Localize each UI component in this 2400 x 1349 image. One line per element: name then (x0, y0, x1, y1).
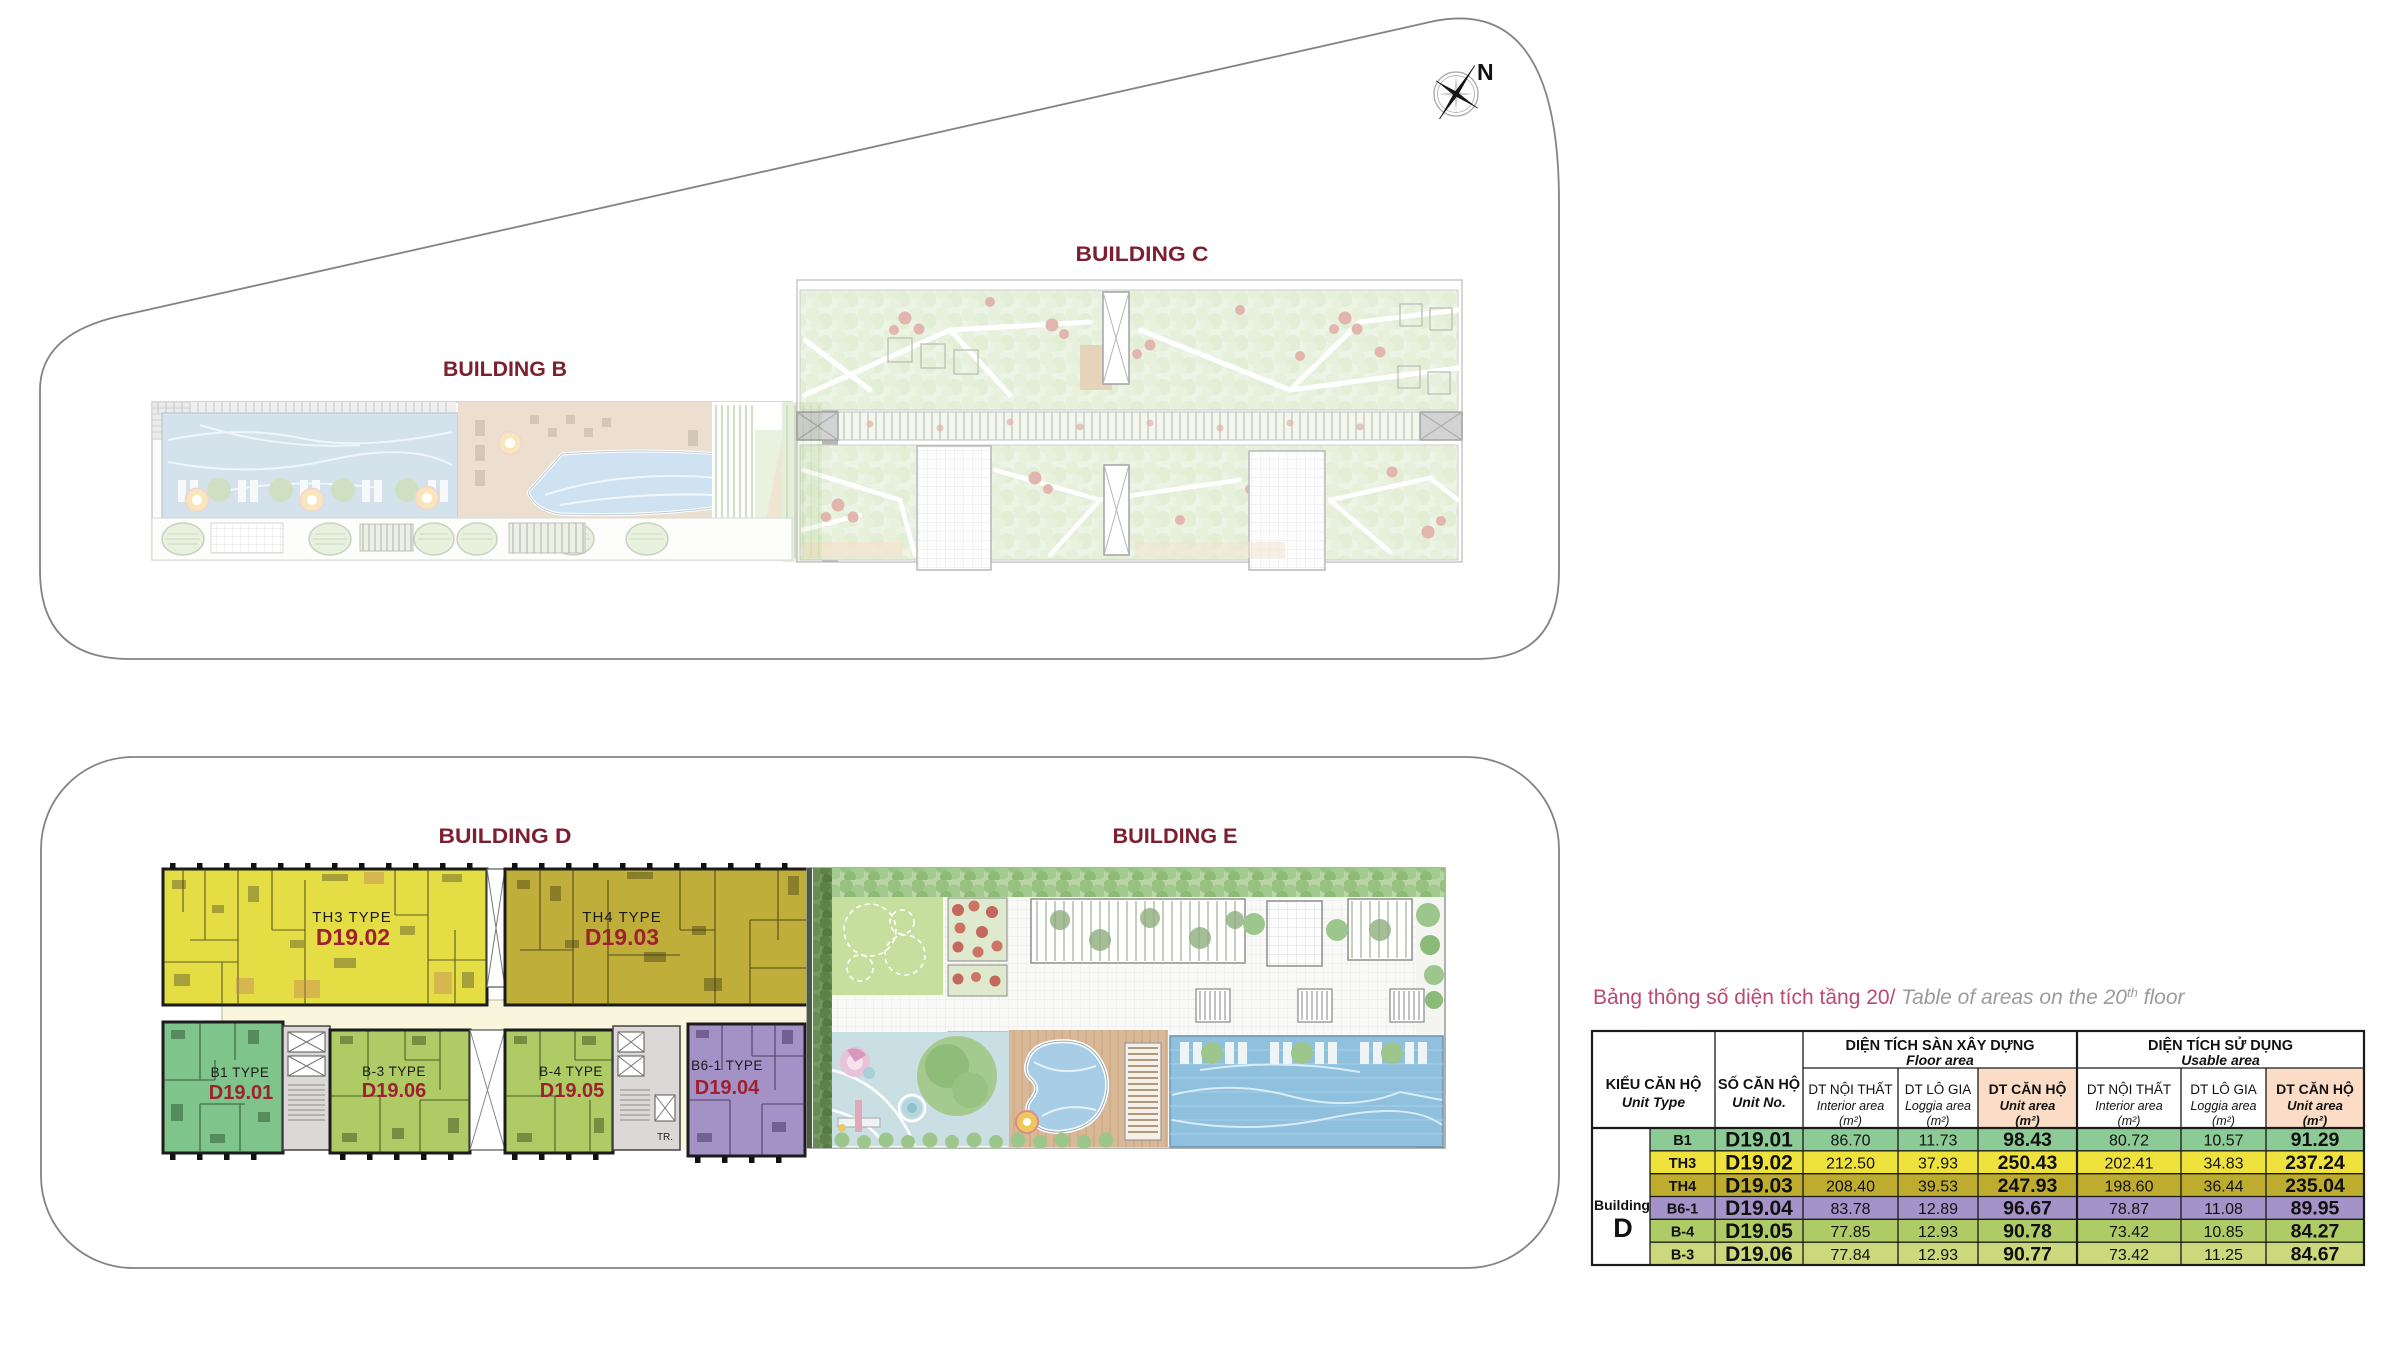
svg-text:11.73: 11.73 (1919, 1133, 1958, 1150)
svg-text:(m²): (m²) (2015, 1113, 2040, 1128)
svg-text:B1: B1 (1673, 1133, 1692, 1149)
svg-text:247.93: 247.93 (1998, 1175, 2058, 1197)
svg-text:B6-1 TYPE: B6-1 TYPE (691, 1058, 763, 1073)
svg-text:98.43: 98.43 (2003, 1129, 2052, 1151)
svg-text:12.93: 12.93 (1918, 1247, 1958, 1264)
svg-text:TR.: TR. (657, 1132, 673, 1143)
svg-text:77.85: 77.85 (1830, 1224, 1870, 1241)
svg-text:12.89: 12.89 (1918, 1201, 1958, 1218)
svg-text:Loggia area: Loggia area (1905, 1099, 1971, 1113)
svg-text:(m²): (m²) (2118, 1114, 2141, 1128)
svg-text:39.53: 39.53 (1918, 1179, 1958, 1196)
svg-text:D19.02: D19.02 (316, 924, 390, 950)
svg-text:90.77: 90.77 (2003, 1244, 2052, 1266)
svg-text:Unit area: Unit area (2000, 1098, 2056, 1113)
svg-text:D19.03: D19.03 (585, 924, 659, 950)
svg-text:KIỂU CĂN HỘ: KIỂU CĂN HỘ (1606, 1075, 1702, 1093)
svg-text:SỐ CĂN HỘ: SỐ CĂN HỘ (1718, 1075, 1800, 1093)
svg-text:37.93: 37.93 (1918, 1156, 1958, 1173)
svg-text:B-4 TYPE: B-4 TYPE (539, 1064, 603, 1079)
svg-text:N: N (1477, 59, 1494, 85)
svg-text:198.60: 198.60 (2105, 1179, 2154, 1196)
svg-text:73.42: 73.42 (2109, 1247, 2149, 1264)
svg-text:BUILDING C: BUILDING C (1076, 242, 1209, 266)
svg-text:80.72: 80.72 (2109, 1133, 2149, 1150)
svg-text:11.08: 11.08 (2204, 1201, 2243, 1218)
svg-text:Building: Building (1594, 1197, 1650, 1213)
svg-text:(m²): (m²) (1839, 1114, 1862, 1128)
svg-text:(m²): (m²) (2303, 1113, 2328, 1128)
svg-text:Unit area: Unit area (2287, 1098, 2343, 1113)
svg-text:250.43: 250.43 (1998, 1152, 2058, 1174)
svg-text:235.04: 235.04 (2285, 1175, 2345, 1197)
svg-text:Interior area: Interior area (2095, 1099, 2162, 1113)
svg-text:D19.03: D19.03 (1725, 1175, 1793, 1198)
svg-text:Unit No.: Unit No. (1732, 1094, 1786, 1110)
svg-text:96.67: 96.67 (2003, 1198, 2052, 1220)
svg-text:DT LÔ GIA: DT LÔ GIA (1905, 1082, 1972, 1097)
svg-text:B-4: B-4 (1671, 1225, 1694, 1241)
svg-text:84.67: 84.67 (2291, 1244, 2340, 1266)
svg-text:D19.01: D19.01 (209, 1082, 274, 1104)
svg-text:B-3: B-3 (1671, 1248, 1694, 1264)
svg-text:D19.05: D19.05 (1725, 1220, 1793, 1243)
svg-text:B-3 TYPE: B-3 TYPE (362, 1064, 426, 1079)
svg-text:D19.06: D19.06 (362, 1080, 427, 1102)
svg-text:77.84: 77.84 (1830, 1247, 1870, 1264)
svg-text:D: D (1613, 1213, 1633, 1243)
svg-text:89.95: 89.95 (2291, 1198, 2340, 1220)
svg-text:TH4: TH4 (1669, 1179, 1696, 1195)
svg-text:86.70: 86.70 (1830, 1133, 1870, 1150)
svg-text:D19.05: D19.05 (540, 1080, 605, 1102)
svg-text:73.42: 73.42 (2109, 1224, 2149, 1241)
svg-text:D19.02: D19.02 (1725, 1152, 1793, 1175)
svg-text:BUILDING E: BUILDING E (1113, 824, 1238, 848)
svg-text:DT CĂN HỘ: DT CĂN HỘ (1989, 1080, 2067, 1097)
svg-text:Usable area: Usable area (2181, 1052, 2260, 1068)
svg-text:78.87: 78.87 (2109, 1201, 2149, 1218)
svg-text:DT CĂN HỘ: DT CĂN HỘ (2276, 1080, 2354, 1097)
svg-text:D19.06: D19.06 (1725, 1243, 1793, 1266)
svg-text:B1 TYPE: B1 TYPE (211, 1065, 270, 1080)
svg-text:84.27: 84.27 (2291, 1221, 2340, 1243)
svg-text:BUILDING D: BUILDING D (439, 824, 572, 848)
svg-text:202.41: 202.41 (2105, 1156, 2154, 1173)
svg-text:36.44: 36.44 (2203, 1179, 2243, 1196)
svg-text:D19.01: D19.01 (1725, 1129, 1793, 1152)
svg-text:90.78: 90.78 (2003, 1221, 2052, 1243)
svg-text:11.25: 11.25 (2204, 1247, 2243, 1264)
svg-text:Floor area: Floor area (1906, 1052, 1974, 1068)
svg-text:10.57: 10.57 (2203, 1133, 2243, 1150)
svg-text:91.29: 91.29 (2291, 1129, 2340, 1151)
svg-text:D19.04: D19.04 (1725, 1197, 1793, 1220)
svg-text:212.50: 212.50 (1826, 1156, 1875, 1173)
svg-text:12.93: 12.93 (1918, 1224, 1958, 1241)
svg-text:DT LÔ GIA: DT LÔ GIA (2190, 1082, 2257, 1097)
svg-text:208.40: 208.40 (1826, 1179, 1875, 1196)
svg-text:83.78: 83.78 (1830, 1201, 1870, 1218)
svg-text:Interior area: Interior area (1817, 1099, 1884, 1113)
svg-text:B6-1: B6-1 (1667, 1202, 1698, 1218)
svg-text:237.24: 237.24 (2285, 1152, 2345, 1174)
svg-text:10.85: 10.85 (2203, 1224, 2243, 1241)
svg-text:DT NỘI THẤT: DT NỘI THẤT (2087, 1082, 2171, 1097)
svg-text:(m²): (m²) (1927, 1114, 1950, 1128)
svg-text:TH3: TH3 (1669, 1156, 1696, 1172)
svg-text:Loggia area: Loggia area (2190, 1099, 2256, 1113)
svg-text:D19.04: D19.04 (695, 1077, 760, 1099)
svg-text:Unit Type: Unit Type (1622, 1094, 1685, 1110)
svg-text:(m²): (m²) (2212, 1114, 2235, 1128)
svg-text:DT NỘI THẤT: DT NỘI THẤT (1808, 1082, 1892, 1097)
svg-text:Bảng thông số diện tích tầng 2: Bảng thông số diện tích tầng 20/ Table o… (1593, 985, 2186, 1009)
svg-text:34.83: 34.83 (2203, 1156, 2243, 1173)
svg-text:BUILDING B: BUILDING B (443, 357, 567, 381)
